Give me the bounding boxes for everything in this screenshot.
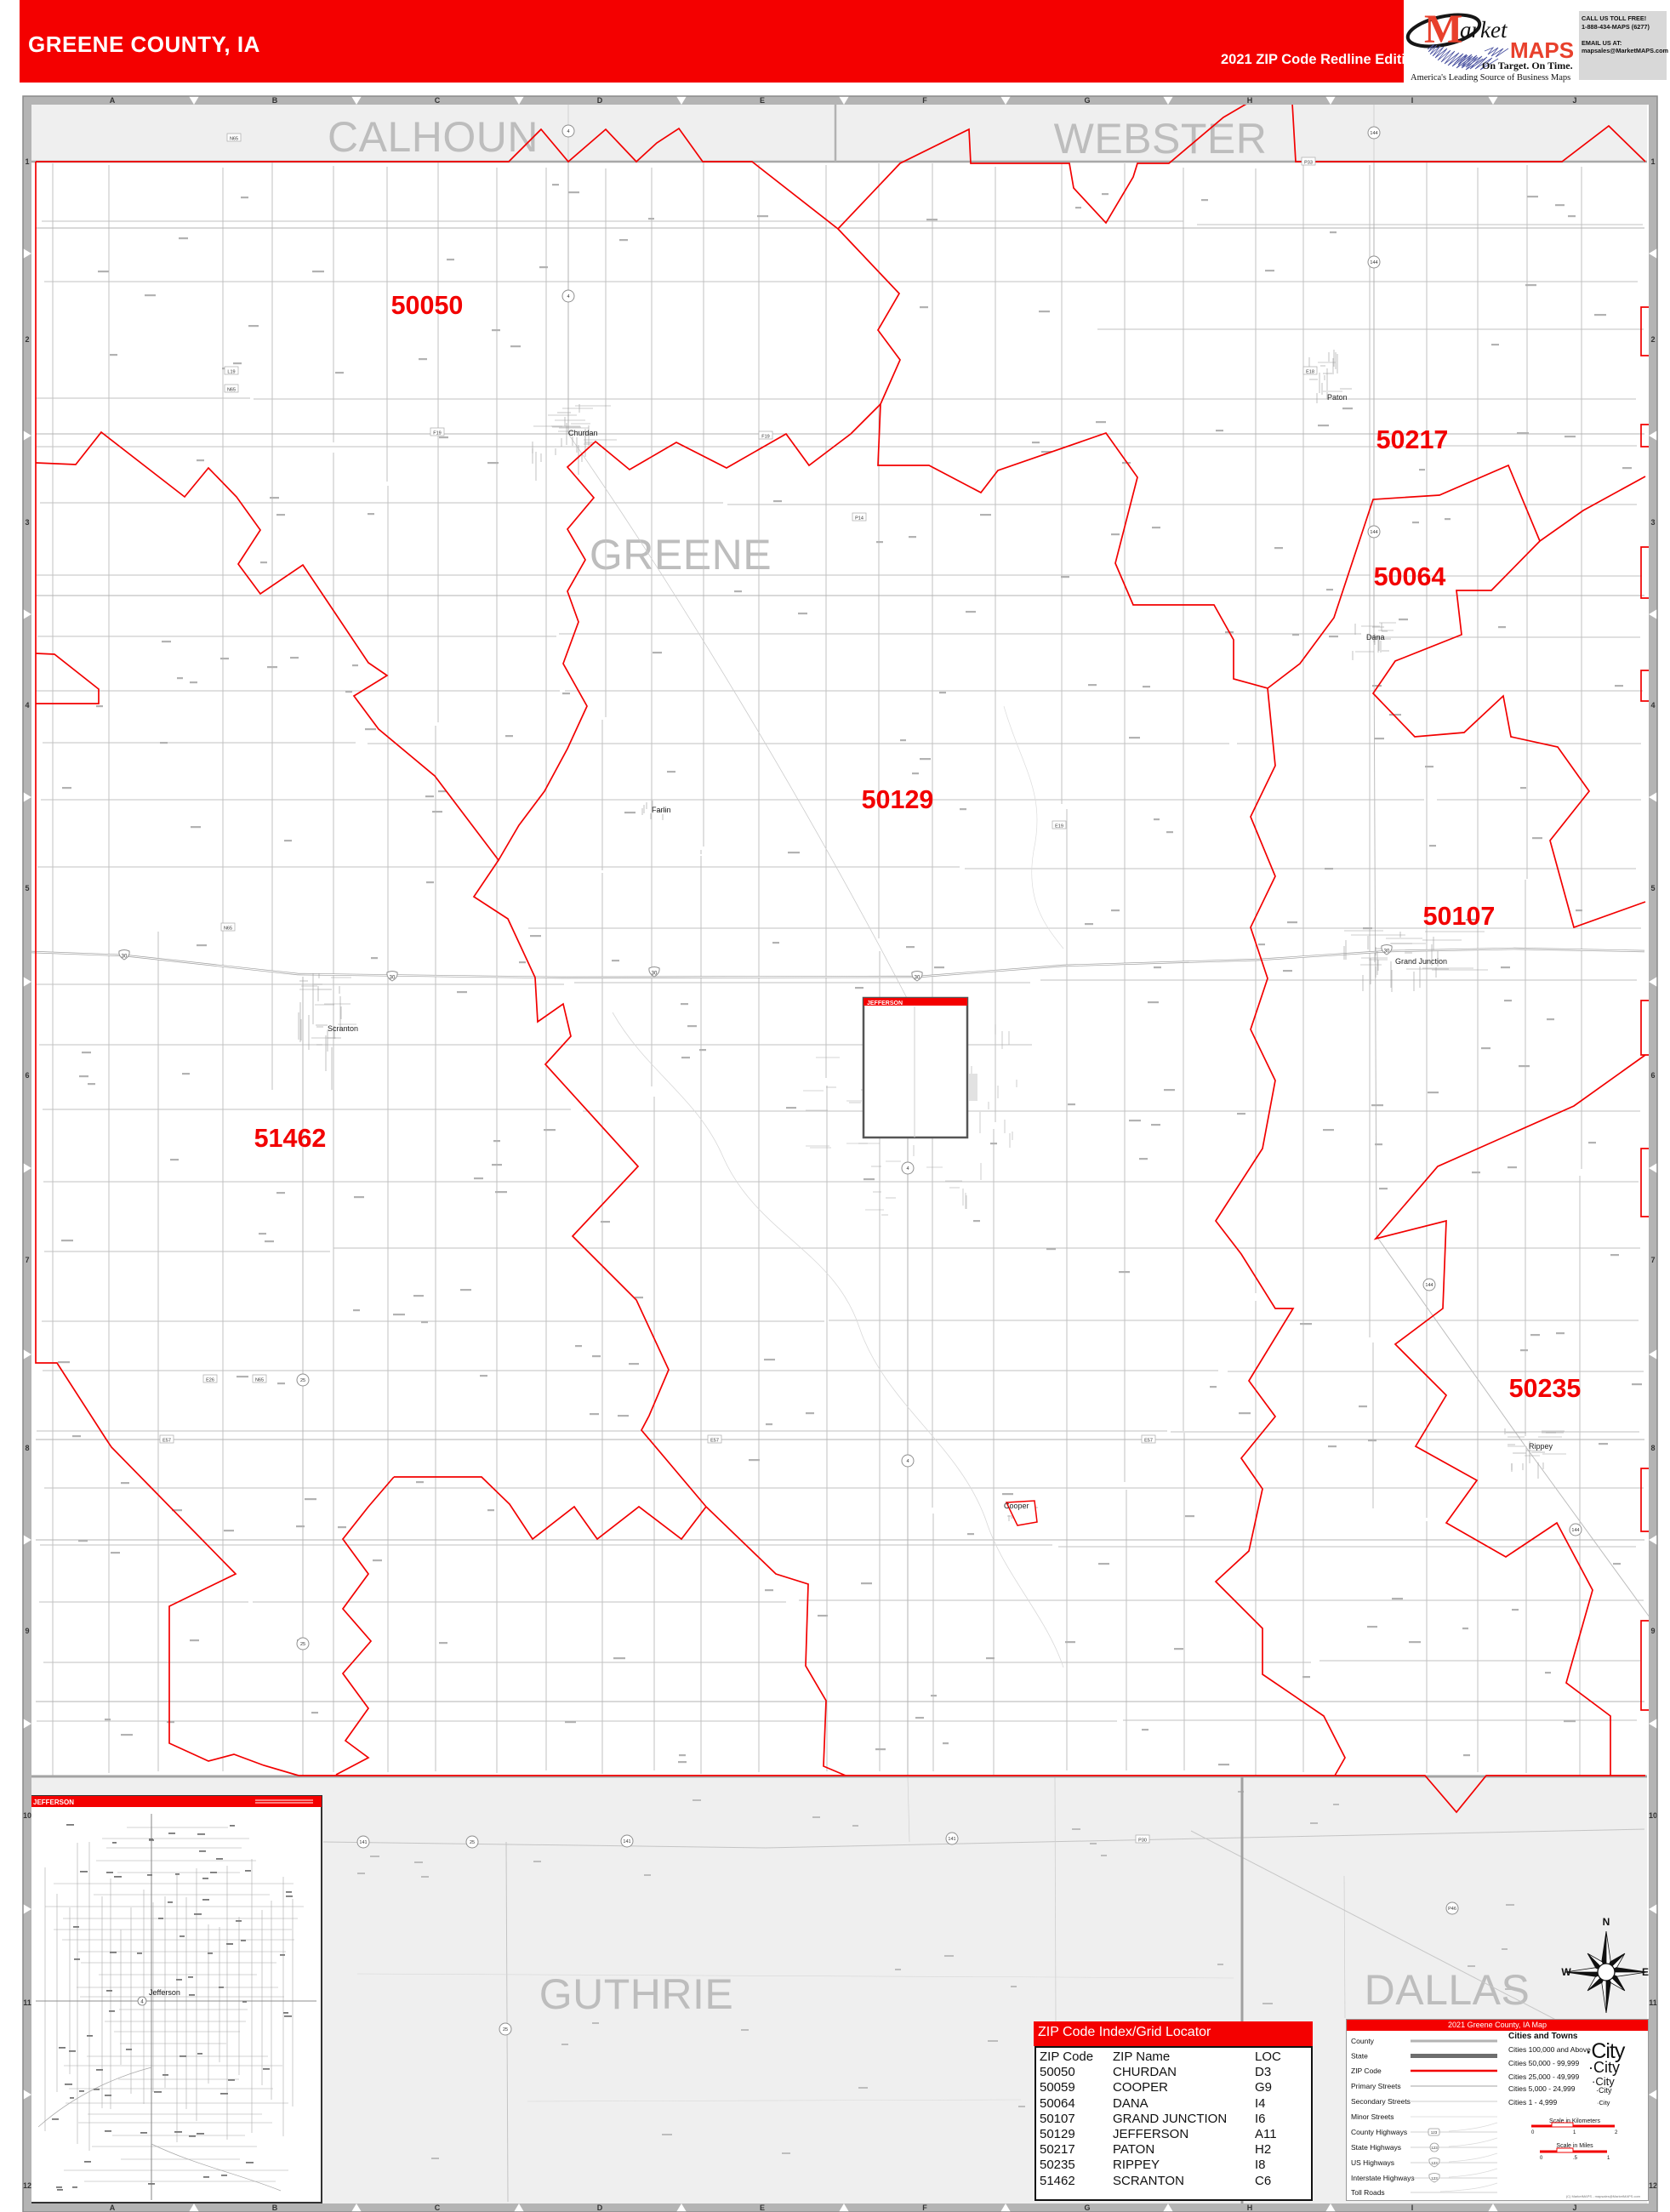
svg-text:E18: E18 <box>1306 370 1314 375</box>
svg-text:GREENE: GREENE <box>590 531 772 579</box>
svg-text:F: F <box>922 2203 927 2212</box>
svg-text:County: County <box>1351 2037 1375 2045</box>
svg-text:H: H <box>1247 2203 1253 2212</box>
svg-text:N65: N65 <box>227 388 236 393</box>
svg-text:141: 141 <box>359 1840 367 1845</box>
svg-text:State Highways: State Highways <box>1351 2143 1401 2152</box>
svg-text:.5: .5 <box>1573 2156 1578 2161</box>
svg-text:F19: F19 <box>761 435 769 440</box>
svg-text:50129: 50129 <box>862 785 934 814</box>
svg-text:Cities 5,000 - 24,999: Cities 5,000 - 24,999 <box>1508 2084 1576 2093</box>
svg-text:123: 123 <box>1431 2161 1438 2165</box>
svg-text:6: 6 <box>1650 1071 1655 1080</box>
svg-text:25: 25 <box>470 1840 475 1845</box>
svg-text:9: 9 <box>1650 1627 1655 1635</box>
svg-text:Cities 1 - 4,999: Cities 1 - 4,999 <box>1508 2098 1557 2107</box>
svg-text:25: 25 <box>300 1642 305 1647</box>
svg-text:7: 7 <box>25 1256 29 1264</box>
svg-text:L19: L19 <box>227 370 235 375</box>
svg-text:Farlin: Farlin <box>652 806 671 814</box>
svg-text:8: 8 <box>1650 1444 1655 1452</box>
svg-text:JEFFERSON: JEFFERSON <box>33 1799 74 1806</box>
svg-text:ZIP Code: ZIP Code <box>1351 2067 1382 2075</box>
svg-text:4: 4 <box>567 129 569 134</box>
svg-text:Dana: Dana <box>1366 633 1385 641</box>
svg-text:123: 123 <box>1431 2130 1438 2135</box>
svg-text:144: 144 <box>1425 1283 1433 1288</box>
svg-text:Primary Streets: Primary Streets <box>1351 2082 1401 2090</box>
svg-text:5: 5 <box>25 884 29 892</box>
svg-text:Grand Junction: Grand Junction <box>1395 957 1447 966</box>
svg-text:CALHOUN: CALHOUN <box>328 113 539 161</box>
svg-text:GUTHRIE: GUTHRIE <box>539 1970 734 2018</box>
svg-text:12: 12 <box>23 2181 31 2190</box>
svg-text:P30: P30 <box>1138 1839 1147 1844</box>
svg-text:2: 2 <box>25 335 29 344</box>
svg-text:Cities 25,000 - 49,999: Cities 25,000 - 49,999 <box>1508 2072 1579 2081</box>
svg-text:144: 144 <box>1370 131 1377 136</box>
svg-text:County Highways: County Highways <box>1351 2128 1407 2136</box>
svg-text:N: N <box>1603 1916 1610 1928</box>
svg-text:A: A <box>110 2203 116 2212</box>
svg-text:50064: 50064 <box>1374 562 1446 591</box>
svg-text:4: 4 <box>906 1459 909 1464</box>
svg-text:Cooper: Cooper <box>1004 1502 1029 1510</box>
svg-text:2: 2 <box>1615 2130 1618 2135</box>
svg-text:I: I <box>1411 2203 1414 2212</box>
svg-text:WEBSTER: WEBSTER <box>1054 115 1268 162</box>
svg-text:0: 0 <box>1540 2156 1543 2161</box>
svg-text:N65: N65 <box>224 926 232 932</box>
svg-text:1: 1 <box>1650 157 1655 166</box>
svg-text:W: W <box>1561 1966 1571 1978</box>
svg-text:144: 144 <box>1370 530 1377 535</box>
svg-text:H: H <box>1247 96 1253 105</box>
svg-text:10: 10 <box>1649 1811 1657 1820</box>
svg-text:·City: ·City <box>1597 2099 1610 2107</box>
svg-text:6: 6 <box>25 1071 29 1080</box>
svg-text:B: B <box>272 96 278 105</box>
svg-text:E: E <box>760 2203 765 2212</box>
svg-text:30: 30 <box>122 955 128 960</box>
svg-text:12: 12 <box>1649 2181 1657 2190</box>
svg-text:Scranton: Scranton <box>328 1024 358 1033</box>
svg-text:50217: 50217 <box>1376 425 1449 454</box>
svg-text:144: 144 <box>1571 1528 1579 1533</box>
svg-text:11: 11 <box>1649 1998 1657 2007</box>
svg-text:50107: 50107 <box>1423 902 1496 931</box>
svg-text:E19: E19 <box>1055 824 1063 829</box>
svg-text:11: 11 <box>23 1998 31 2007</box>
svg-text:E: E <box>760 96 765 105</box>
svg-text:141: 141 <box>623 1839 630 1844</box>
svg-text:N65: N65 <box>255 1378 264 1383</box>
svg-text:Paton: Paton <box>1327 393 1348 402</box>
svg-text:E: E <box>1642 1966 1649 1978</box>
svg-text:G: G <box>1084 2203 1090 2212</box>
svg-text:·City: ·City <box>1596 2086 1612 2095</box>
svg-text:25: 25 <box>300 1378 305 1383</box>
svg-text:G: G <box>1084 96 1090 105</box>
svg-text:Cities 100,000 and Above: Cities 100,000 and Above <box>1508 2045 1591 2054</box>
svg-text:30: 30 <box>1384 949 1390 955</box>
svg-text:E57: E57 <box>162 1439 171 1444</box>
svg-text:P14: P14 <box>855 516 863 522</box>
svg-text:State: State <box>1351 2052 1368 2061</box>
svg-text:E57: E57 <box>710 1439 719 1444</box>
svg-text:1: 1 <box>1573 2130 1576 2135</box>
svg-text:1: 1 <box>1607 2156 1610 2161</box>
svg-text:E57: E57 <box>1144 1439 1153 1444</box>
svg-text:5: 5 <box>1650 884 1655 892</box>
svg-text:B: B <box>272 2203 278 2212</box>
svg-text:4: 4 <box>1650 701 1655 710</box>
svg-text:P46: P46 <box>1448 1907 1456 1912</box>
svg-text:30: 30 <box>915 976 920 981</box>
svg-text:Minor Streets: Minor Streets <box>1351 2112 1394 2121</box>
svg-text:141: 141 <box>948 1837 955 1842</box>
svg-text:1: 1 <box>25 157 29 166</box>
svg-text:A: A <box>110 96 116 105</box>
svg-text:25: 25 <box>503 2027 508 2032</box>
svg-text:4: 4 <box>567 294 569 299</box>
svg-text:Cities 50,000 - 99,999: Cities 50,000 - 99,999 <box>1508 2059 1579 2067</box>
svg-text:30: 30 <box>390 976 396 981</box>
svg-text:N65: N65 <box>230 137 238 142</box>
svg-text:US Highways: US Highways <box>1351 2158 1394 2167</box>
svg-text:JEFFERSON: JEFFERSON <box>867 1001 903 1006</box>
svg-text:8: 8 <box>25 1444 29 1452</box>
svg-text:144: 144 <box>1370 260 1377 265</box>
svg-text:2: 2 <box>1650 335 1655 344</box>
svg-text:4: 4 <box>25 701 29 710</box>
svg-text:Churdan: Churdan <box>568 429 598 437</box>
svg-text:123: 123 <box>1431 2146 1438 2150</box>
svg-text:3: 3 <box>1650 518 1655 527</box>
svg-text:Rippey: Rippey <box>1529 1442 1553 1451</box>
svg-text:C: C <box>435 2203 441 2212</box>
svg-text:J: J <box>1572 96 1576 105</box>
svg-text:·City: ·City <box>1588 2059 1620 2076</box>
svg-text:50050: 50050 <box>391 291 464 320</box>
svg-text:4: 4 <box>906 1166 909 1172</box>
svg-text:30: 30 <box>652 972 658 977</box>
svg-text:Cities and Towns: Cities and Towns <box>1508 2032 1578 2041</box>
svg-text:D: D <box>597 96 603 105</box>
svg-text:123: 123 <box>1431 2176 1438 2181</box>
svg-text:7: 7 <box>1650 1256 1655 1264</box>
svg-text:C: C <box>435 96 441 105</box>
svg-text:D: D <box>597 2203 603 2212</box>
svg-text:Secondary Streets: Secondary Streets <box>1351 2097 1411 2106</box>
svg-text:F19: F19 <box>433 431 441 436</box>
svg-text:50235: 50235 <box>1509 1374 1582 1403</box>
svg-text:10: 10 <box>23 1811 31 1820</box>
svg-text:(C) MarketMAPS - mapsales@Ma: (C) MarketMAPS - mapsales@MarketMAPS.com <box>1566 2194 1641 2198</box>
svg-text:9: 9 <box>25 1627 29 1635</box>
svg-text:J: J <box>1572 2203 1576 2212</box>
svg-text:Jefferson: Jefferson <box>149 1988 180 1997</box>
svg-text:E26: E26 <box>206 1378 214 1383</box>
svg-text:0: 0 <box>1531 2130 1535 2135</box>
svg-text:3: 3 <box>25 518 29 527</box>
svg-text:I: I <box>1411 96 1414 105</box>
svg-text:Interstate Highways: Interstate Highways <box>1351 2174 1415 2182</box>
svg-text:51462: 51462 <box>254 1124 327 1153</box>
svg-text:F: F <box>922 96 927 105</box>
svg-text:P33: P33 <box>1304 161 1313 166</box>
svg-text:Toll Roads: Toll Roads <box>1351 2188 1385 2197</box>
